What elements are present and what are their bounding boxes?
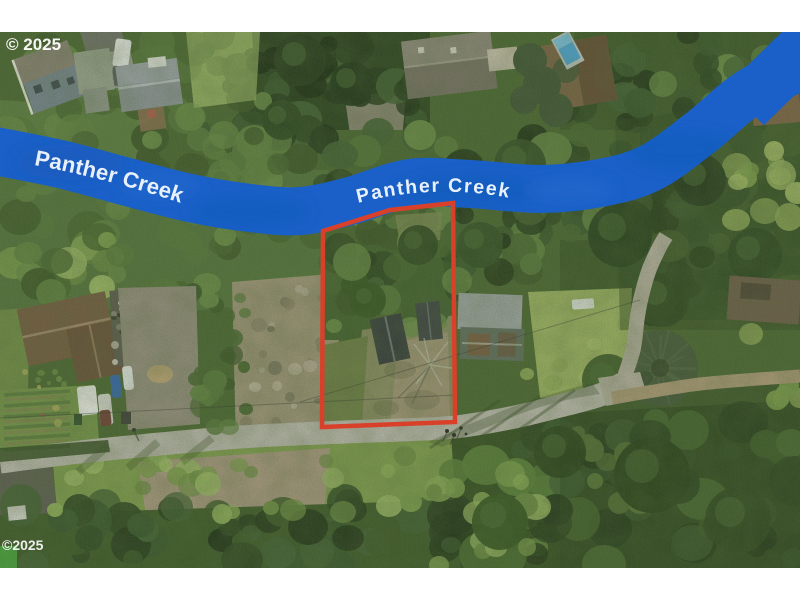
svg-text:©2025: ©2025 <box>2 537 44 553</box>
svg-text:© 2025: © 2025 <box>6 35 61 54</box>
